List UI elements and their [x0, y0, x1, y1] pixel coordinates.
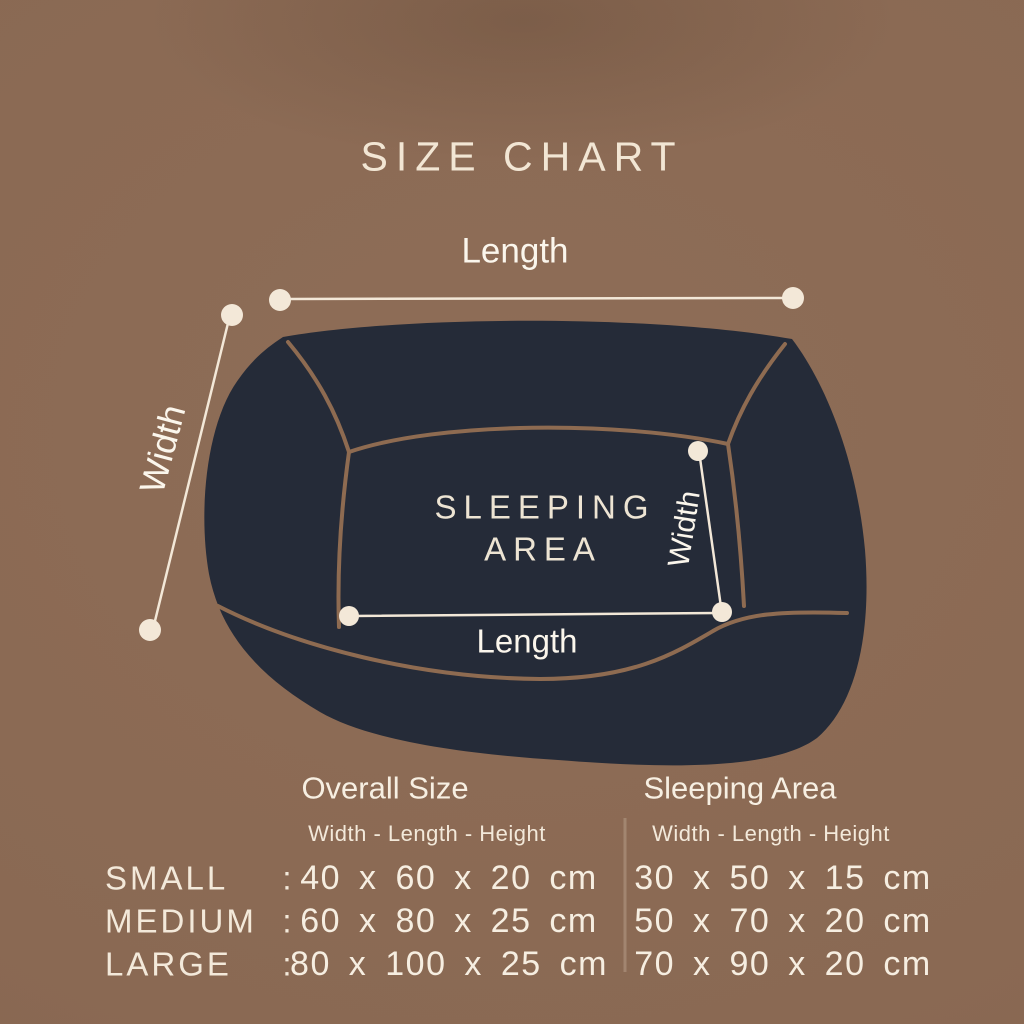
- page-title: SIZE CHART: [361, 137, 684, 178]
- size-row-label: LARGE: [105, 948, 232, 981]
- sleeping-area-header: Sleeping Area: [643, 773, 836, 804]
- sleeping-area-value: 70 x 90 x 20 cm: [634, 947, 932, 981]
- measure-dot: [339, 606, 359, 626]
- row-separator: :: [282, 862, 291, 895]
- overall-size-value: 60 x 80 x 25 cm: [300, 904, 598, 938]
- size-row-label: SMALL: [105, 862, 228, 895]
- overall-length-line: [287, 298, 788, 299]
- measure-dot: [221, 304, 243, 326]
- overall-size-value: 40 x 60 x 20 cm: [300, 861, 598, 895]
- sleeping-dims-subheader: Width - Length - Height: [652, 823, 890, 845]
- overall-length-label: Length: [461, 234, 568, 269]
- size-chart-infographic: SIZE CHART Length Width SLEEPING AREA Wi…: [0, 0, 1024, 1024]
- sleeping-length-label: Length: [477, 625, 578, 658]
- measure-dot: [782, 287, 804, 309]
- overall-size-header: Overall Size: [301, 773, 468, 804]
- measure-dot: [712, 602, 732, 622]
- size-row-label: MEDIUM: [105, 905, 257, 938]
- overall-dims-subheader: Width - Length - Height: [308, 823, 546, 845]
- sleeping-area-value: 50 x 70 x 20 cm: [634, 904, 932, 938]
- measure-dot: [269, 289, 291, 311]
- sleeping-area-value: 30 x 50 x 15 cm: [634, 861, 932, 895]
- overall-size-value: 80 x 100 x 25 cm: [290, 947, 608, 981]
- measure-dot: [139, 619, 161, 641]
- row-separator: :: [282, 905, 291, 938]
- measure-dot: [688, 441, 708, 461]
- sleeping-area-label-line2: AREA: [484, 533, 602, 566]
- sleeping-area-label-line1: SLEEPING: [434, 491, 655, 524]
